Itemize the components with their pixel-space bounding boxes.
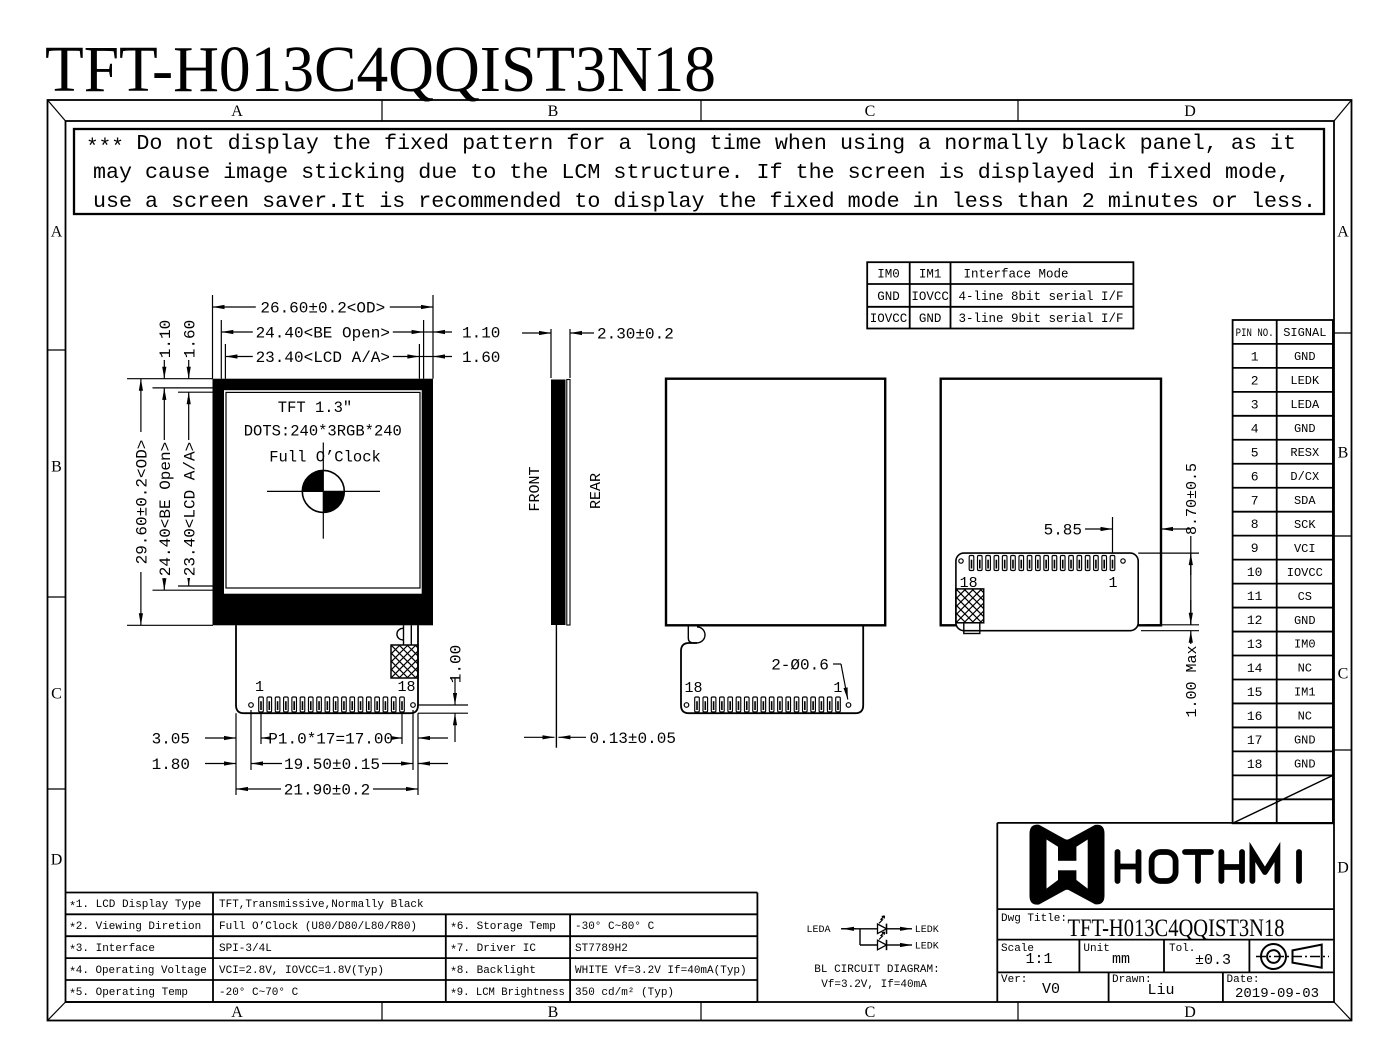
svg-text:1: 1 bbox=[255, 679, 264, 696]
svg-text:C: C bbox=[865, 1004, 876, 1021]
svg-text:CS: CS bbox=[1298, 590, 1312, 604]
svg-text:16: 16 bbox=[1247, 709, 1263, 724]
svg-text:1: 1 bbox=[1108, 575, 1117, 592]
svg-text:15: 15 bbox=[1247, 685, 1263, 700]
svg-text:Do not display the fixed patte: Do not display the fixed pattern for a l… bbox=[136, 133, 1296, 156]
svg-text:REAR: REAR bbox=[588, 473, 605, 509]
svg-text:B: B bbox=[548, 1004, 559, 1021]
svg-text:D: D bbox=[1184, 103, 1196, 120]
svg-text:9. LCM Brightness: 9. LCM Brightness bbox=[457, 987, 565, 999]
svg-text:LEDA: LEDA bbox=[1290, 398, 1320, 412]
svg-text:VCI=2.8V, IOVCC=1.8V(Typ): VCI=2.8V, IOVCC=1.8V(Typ) bbox=[219, 965, 384, 977]
svg-text:Interface Mode: Interface Mode bbox=[963, 268, 1068, 282]
svg-text:SDA: SDA bbox=[1294, 494, 1316, 508]
svg-text:1.10: 1.10 bbox=[157, 320, 175, 358]
svg-text:use a screen saver.It is recom: use a screen saver.It is recommended to … bbox=[93, 191, 1316, 214]
svg-text:3. Interface: 3. Interface bbox=[76, 943, 155, 955]
svg-text:A: A bbox=[231, 1004, 243, 1021]
svg-text:Unit: Unit bbox=[1083, 943, 1109, 955]
svg-text:21.90±0.2: 21.90±0.2 bbox=[284, 782, 370, 800]
svg-text:Ver:: Ver: bbox=[1001, 974, 1027, 986]
svg-text:GND: GND bbox=[919, 312, 942, 326]
svg-text:PIN NO.: PIN NO. bbox=[1236, 328, 1274, 340]
svg-text:Date:: Date: bbox=[1227, 974, 1260, 986]
svg-text:5.85: 5.85 bbox=[1044, 522, 1082, 540]
svg-text:1: 1 bbox=[833, 680, 842, 697]
svg-text:BL CIRCUIT DIAGRAM:: BL CIRCUIT DIAGRAM: bbox=[814, 964, 939, 976]
svg-text:D/CX: D/CX bbox=[1290, 470, 1319, 484]
svg-text:A: A bbox=[51, 224, 63, 241]
svg-text:Drawn:: Drawn: bbox=[1112, 974, 1152, 986]
svg-text:17: 17 bbox=[1247, 733, 1263, 748]
svg-text:NC: NC bbox=[1298, 710, 1312, 724]
svg-text:SCK: SCK bbox=[1294, 518, 1316, 532]
svg-text:IM0: IM0 bbox=[877, 268, 900, 282]
svg-text:A: A bbox=[231, 103, 243, 120]
svg-text:9: 9 bbox=[1251, 541, 1259, 556]
svg-text:350 cd/m² (Typ): 350 cd/m² (Typ) bbox=[575, 987, 674, 999]
svg-text:23.40<LCD A/A>: 23.40<LCD A/A> bbox=[256, 349, 390, 367]
svg-text:GND: GND bbox=[1294, 758, 1316, 772]
svg-text:2-Ø0.6: 2-Ø0.6 bbox=[771, 657, 829, 675]
svg-text:5: 5 bbox=[1251, 445, 1259, 460]
svg-text:4-line 8bit serial I/F: 4-line 8bit serial I/F bbox=[959, 290, 1124, 304]
svg-text:LEDK: LEDK bbox=[1290, 374, 1320, 388]
svg-text:4: 4 bbox=[1251, 421, 1259, 436]
svg-text:Vf=3.2V, If=40mA: Vf=3.2V, If=40mA bbox=[821, 979, 927, 991]
svg-text:SIGNAL: SIGNAL bbox=[1283, 326, 1326, 340]
svg-text:3.05: 3.05 bbox=[152, 731, 190, 749]
svg-text:A: A bbox=[1337, 224, 1349, 241]
svg-text:P1.0*17=17.00: P1.0*17=17.00 bbox=[268, 731, 393, 749]
svg-text:1.00 Max: 1.00 Max bbox=[1184, 645, 1201, 717]
svg-text:1: 1 bbox=[1251, 349, 1259, 364]
svg-text:8: 8 bbox=[1251, 517, 1259, 532]
svg-text:1.80: 1.80 bbox=[152, 756, 190, 774]
svg-text:1.10: 1.10 bbox=[462, 325, 500, 343]
svg-text:1:1: 1:1 bbox=[1025, 951, 1052, 968]
svg-text:D: D bbox=[1184, 1004, 1196, 1021]
svg-text:2019-09-03: 2019-09-03 bbox=[1235, 986, 1319, 1002]
svg-text:IM0: IM0 bbox=[1294, 638, 1316, 652]
svg-text:GND: GND bbox=[1294, 350, 1316, 364]
svg-text:D: D bbox=[51, 852, 63, 869]
svg-text:6: 6 bbox=[1251, 469, 1259, 484]
svg-text:24.40<BE Open>: 24.40<BE Open> bbox=[256, 325, 390, 343]
svg-text:TFT,Transmissive,Normally Blac: TFT,Transmissive,Normally Black bbox=[219, 899, 424, 911]
svg-text:12: 12 bbox=[1247, 613, 1263, 628]
svg-text:D: D bbox=[1337, 860, 1349, 877]
svg-text:FRONT: FRONT bbox=[527, 466, 544, 511]
svg-text:-30° C~80° C: -30° C~80° C bbox=[575, 921, 655, 933]
svg-text:18: 18 bbox=[1247, 757, 1263, 772]
svg-text:TFT-H013C4QQIST3N18: TFT-H013C4QQIST3N18 bbox=[1068, 915, 1285, 942]
svg-text:Tol.: Tol. bbox=[1169, 943, 1195, 955]
svg-text:ST7789H2: ST7789H2 bbox=[575, 943, 628, 955]
svg-text:29.60±0.2<OD>: 29.60±0.2<OD> bbox=[134, 440, 152, 565]
svg-text:NC: NC bbox=[1298, 662, 1312, 676]
svg-text:IM1: IM1 bbox=[1294, 686, 1316, 700]
svg-text:8. Backlight: 8. Backlight bbox=[457, 965, 536, 977]
svg-text:Dwg Title:: Dwg Title: bbox=[1001, 913, 1067, 925]
svg-text:10: 10 bbox=[1247, 565, 1263, 580]
svg-text:B: B bbox=[51, 459, 62, 476]
svg-text:B: B bbox=[1338, 445, 1349, 462]
svg-text:26.60±0.2<OD>: 26.60±0.2<OD> bbox=[260, 300, 385, 318]
svg-text:Liu: Liu bbox=[1147, 982, 1174, 999]
svg-text:C: C bbox=[865, 103, 876, 120]
svg-text:2.30±0.2: 2.30±0.2 bbox=[597, 326, 674, 344]
svg-text:IOVCC: IOVCC bbox=[870, 312, 908, 326]
svg-text:24.40<BE Open>: 24.40<BE Open> bbox=[157, 442, 175, 576]
svg-text:TFT-H013C4QQIST3N18: TFT-H013C4QQIST3N18 bbox=[45, 33, 716, 106]
svg-text:LEDK: LEDK bbox=[915, 925, 939, 936]
svg-text:TFT 1.3″: TFT 1.3″ bbox=[278, 399, 352, 417]
svg-text:4. Operating Voltage: 4. Operating Voltage bbox=[76, 965, 207, 977]
svg-text:2: 2 bbox=[1251, 373, 1259, 388]
svg-text:DOTS:240*3RGB*240: DOTS:240*3RGB*240 bbox=[244, 423, 402, 441]
svg-text:14: 14 bbox=[1247, 661, 1263, 676]
svg-text:GND: GND bbox=[1294, 614, 1316, 628]
svg-text:1.60: 1.60 bbox=[462, 349, 500, 367]
svg-text:±0.3: ±0.3 bbox=[1195, 952, 1231, 969]
svg-text:***: *** bbox=[86, 137, 124, 160]
svg-text:GND: GND bbox=[1294, 422, 1316, 436]
svg-text:B: B bbox=[548, 103, 559, 120]
svg-text:WHITE Vf=3.2V If=40mA(Typ): WHITE Vf=3.2V If=40mA(Typ) bbox=[575, 965, 747, 977]
svg-text:8.70±0.5: 8.70±0.5 bbox=[1184, 463, 1201, 535]
svg-text:2. Viewing Diretion: 2. Viewing Diretion bbox=[76, 921, 201, 933]
svg-text:-20° C~70° C: -20° C~70° C bbox=[219, 987, 299, 999]
svg-text:18: 18 bbox=[684, 680, 702, 697]
svg-text:7: 7 bbox=[1251, 493, 1259, 508]
svg-text:13: 13 bbox=[1247, 637, 1263, 652]
svg-text:1.00: 1.00 bbox=[448, 645, 466, 683]
svg-text:5. Operating Temp: 5. Operating Temp bbox=[76, 987, 188, 999]
svg-text:0.13±0.05: 0.13±0.05 bbox=[590, 730, 676, 748]
svg-text:18: 18 bbox=[397, 679, 415, 696]
svg-text:VCI: VCI bbox=[1294, 542, 1316, 556]
svg-text:6. Storage Temp: 6. Storage Temp bbox=[457, 921, 556, 933]
svg-text:11: 11 bbox=[1247, 589, 1263, 604]
svg-text:LEDA: LEDA bbox=[806, 925, 830, 936]
svg-text:Full O’Clock: Full O’Clock bbox=[269, 449, 381, 467]
svg-text:SPI-3/4L: SPI-3/4L bbox=[219, 943, 272, 955]
svg-text:LEDK: LEDK bbox=[915, 942, 939, 953]
svg-text:7. Driver IC: 7. Driver IC bbox=[457, 943, 537, 955]
svg-text:V0: V0 bbox=[1042, 981, 1060, 998]
svg-text:23.40<LCD A/A>: 23.40<LCD A/A> bbox=[181, 442, 199, 576]
svg-text:Full O’Clock (U80/D80/L80/R80): Full O’Clock (U80/D80/L80/R80) bbox=[219, 921, 417, 933]
svg-text:RESX: RESX bbox=[1290, 446, 1319, 460]
svg-text:mm: mm bbox=[1112, 951, 1130, 968]
svg-text:IOVCC: IOVCC bbox=[911, 290, 949, 304]
svg-text:C: C bbox=[1338, 666, 1349, 683]
svg-text:GND: GND bbox=[877, 290, 900, 304]
svg-text:1. LCD Display Type: 1. LCD Display Type bbox=[76, 899, 201, 911]
svg-text:3-line 9bit serial I/F: 3-line 9bit serial I/F bbox=[959, 312, 1124, 326]
svg-text:IM1: IM1 bbox=[919, 268, 942, 282]
svg-text:may cause image sticking due t: may cause image sticking due to the LCM … bbox=[93, 162, 1290, 185]
svg-text:GND: GND bbox=[1294, 734, 1316, 748]
svg-text:IOVCC: IOVCC bbox=[1287, 566, 1323, 580]
svg-text:1.60: 1.60 bbox=[181, 320, 199, 358]
svg-text:3: 3 bbox=[1251, 397, 1259, 412]
svg-text:C: C bbox=[51, 686, 62, 703]
svg-text:19.50±0.15: 19.50±0.15 bbox=[284, 756, 380, 774]
